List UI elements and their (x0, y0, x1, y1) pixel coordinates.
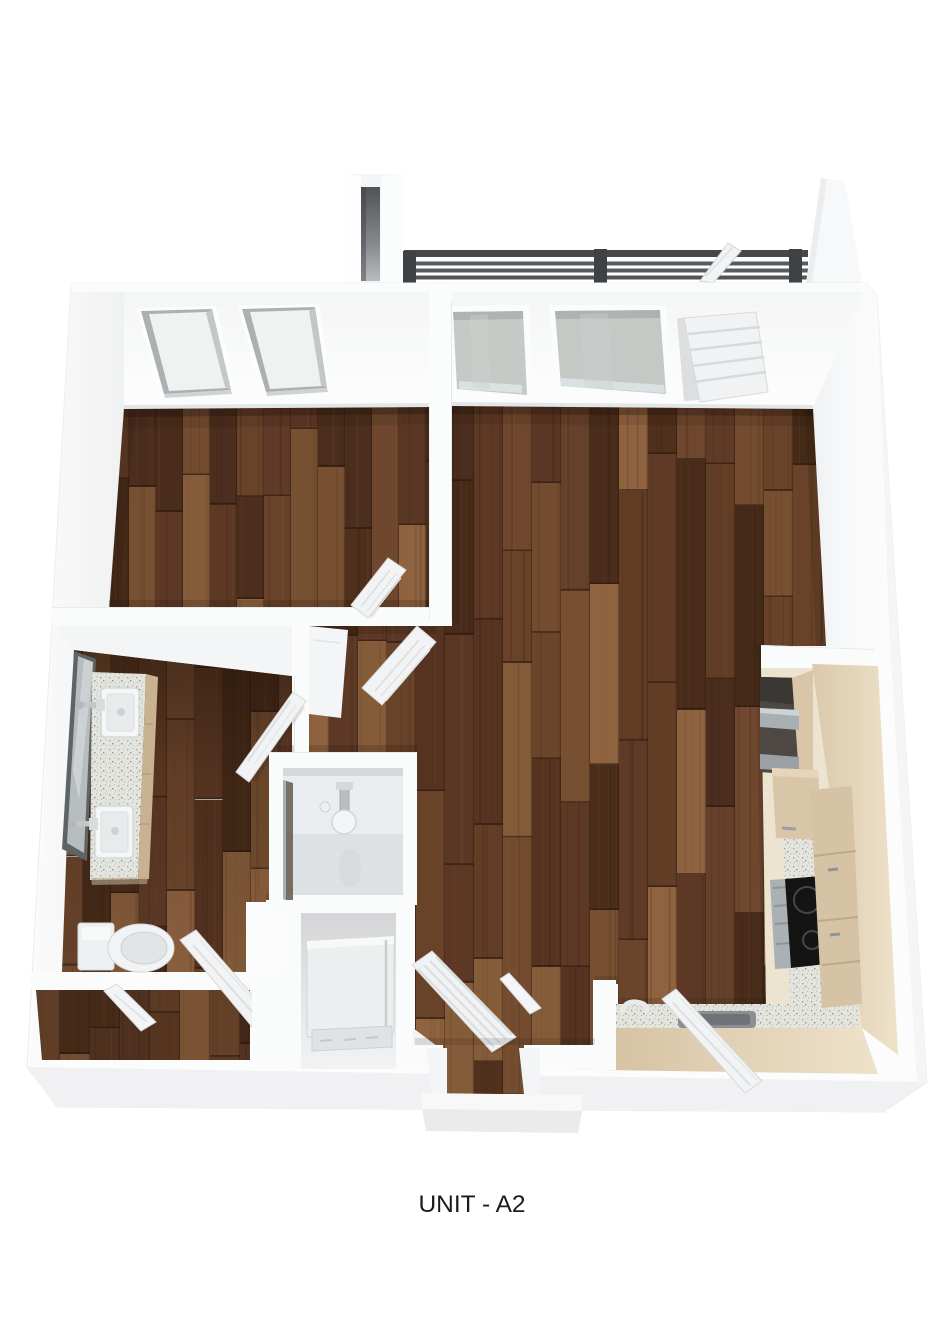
svg-text:UNIT - A2: UNIT - A2 (418, 1191, 525, 1218)
